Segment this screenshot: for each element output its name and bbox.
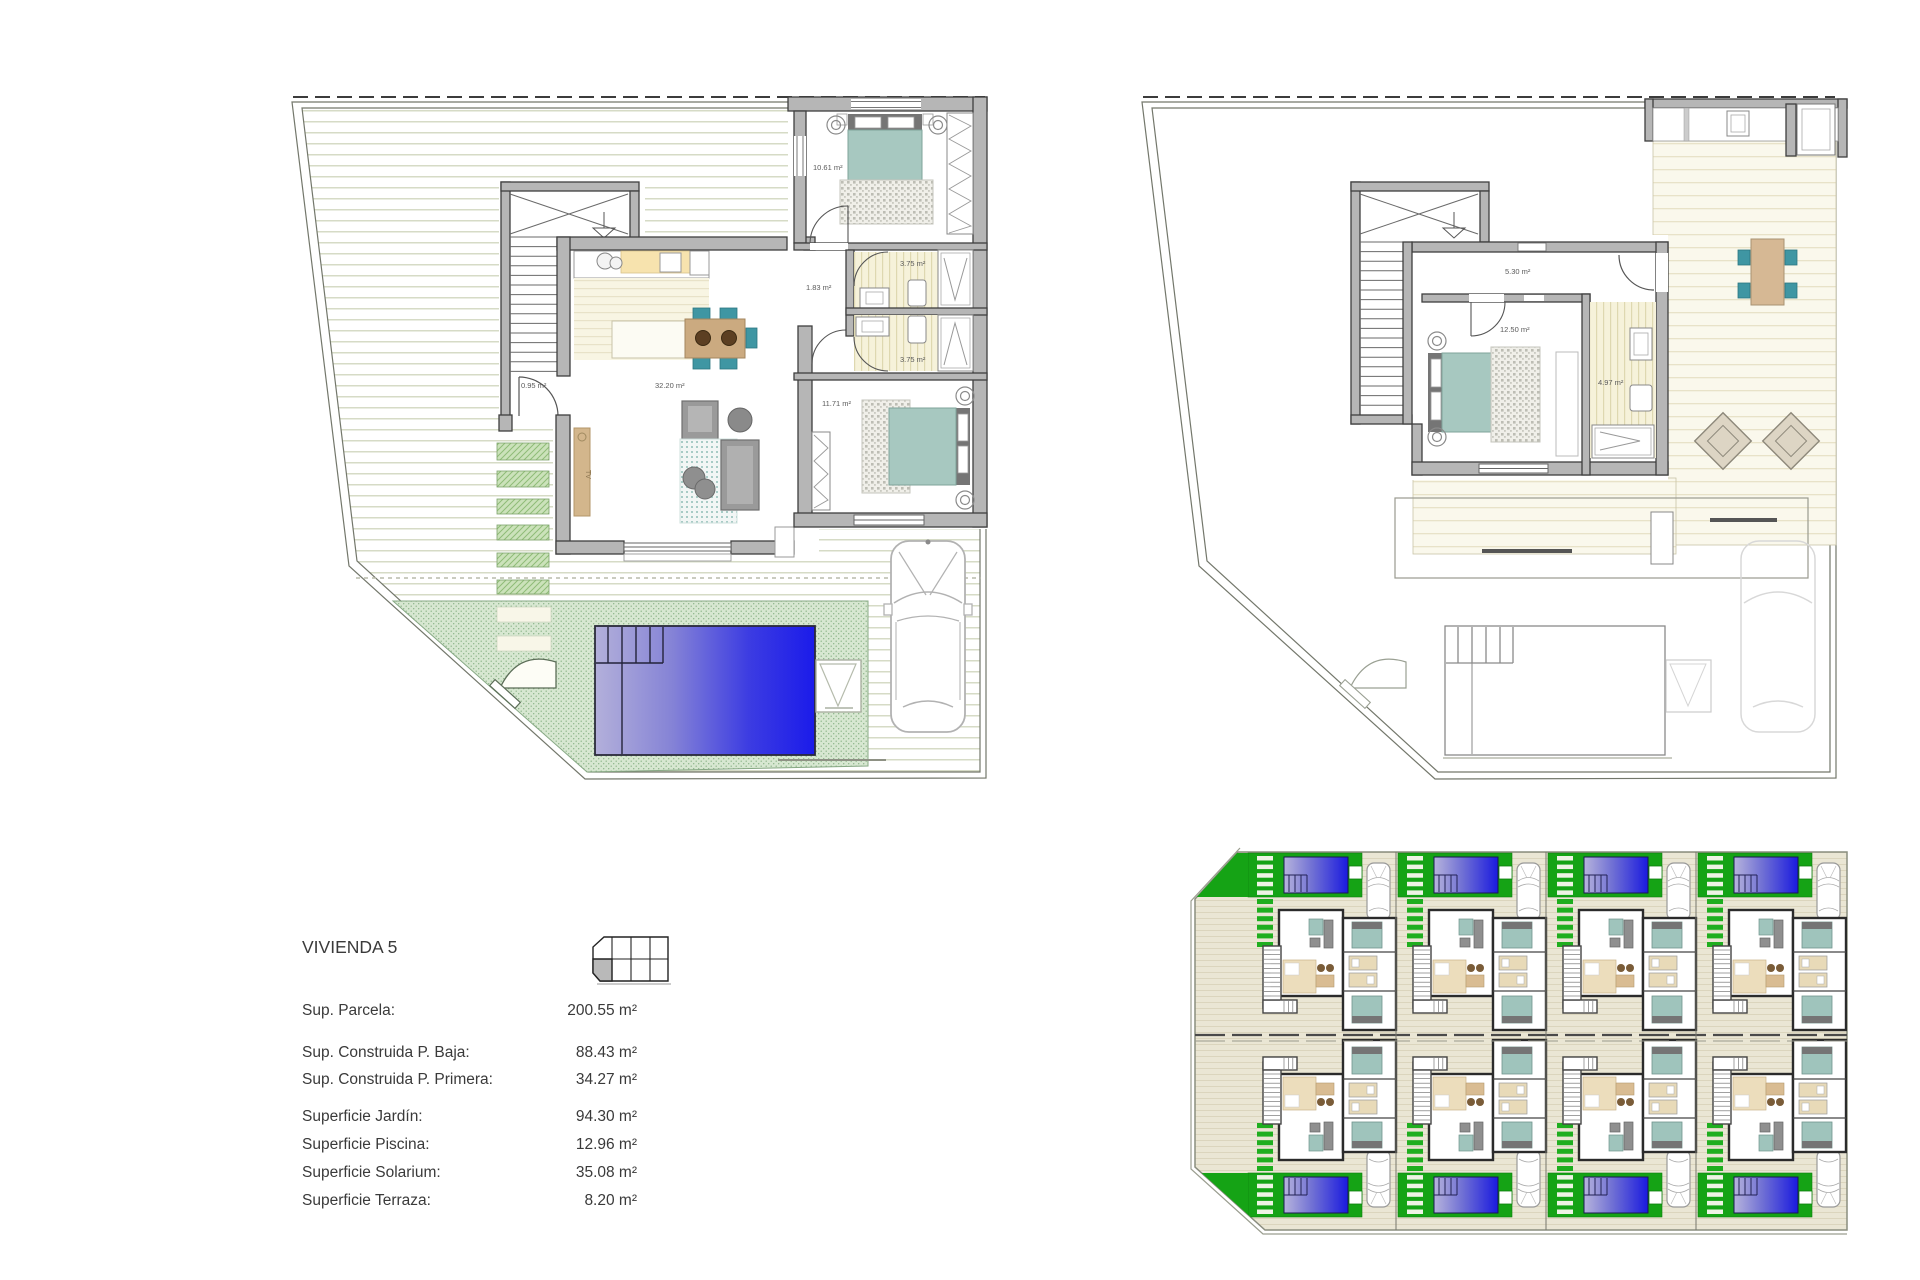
svg-text:Superficie Solarium:: Superficie Solarium: [302, 1164, 441, 1181]
svg-text:10.61 m²: 10.61 m² [813, 163, 843, 172]
svg-text:11.71 m²: 11.71 m² [822, 399, 852, 408]
svg-text:88.43 m²: 88.43 m² [576, 1044, 637, 1061]
svg-text:3.75 m²: 3.75 m² [900, 355, 926, 364]
svg-text:1.83 m²: 1.83 m² [806, 283, 832, 292]
svg-text:94.30 m²: 94.30 m² [576, 1108, 637, 1125]
svg-text:200.55 m²: 200.55 m² [567, 1002, 637, 1019]
svg-text:Superficie Piscina:: Superficie Piscina: [302, 1136, 430, 1153]
svg-text:Sup. Construida P. Baja:: Sup. Construida P. Baja: [302, 1044, 470, 1061]
svg-text:32.20 m²: 32.20 m² [655, 381, 685, 390]
svg-text:5.30 m²: 5.30 m² [1505, 267, 1531, 276]
svg-text:3.75 m²: 3.75 m² [900, 259, 926, 268]
svg-text:Superficie Jardín:: Superficie Jardín: [302, 1108, 423, 1125]
svg-text:TV: TV [584, 470, 591, 479]
svg-text:35.08 m²: 35.08 m² [576, 1164, 637, 1181]
svg-text:12.96 m²: 12.96 m² [576, 1136, 637, 1153]
svg-text:8.20 m²: 8.20 m² [584, 1192, 637, 1209]
svg-text:Sup. Parcela:: Sup. Parcela: [302, 1002, 395, 1019]
svg-text:4.97 m²: 4.97 m² [1598, 378, 1624, 387]
svg-text:VIVIENDA 5: VIVIENDA 5 [302, 937, 397, 957]
svg-text:0.95 m²: 0.95 m² [521, 381, 547, 390]
svg-text:Superficie Terraza:: Superficie Terraza: [302, 1192, 431, 1209]
svg-text:Sup. Construida P. Primera:: Sup. Construida P. Primera: [302, 1071, 493, 1088]
svg-text:12.50 m²: 12.50 m² [1500, 325, 1530, 334]
svg-text:34.27 m²: 34.27 m² [576, 1071, 637, 1088]
